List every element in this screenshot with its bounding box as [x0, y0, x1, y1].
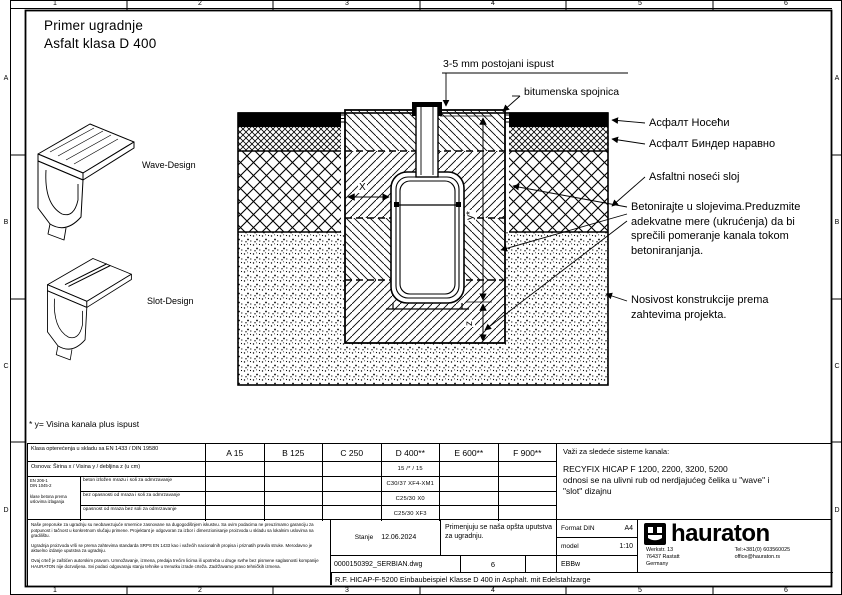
- format-cell: Format DIN A4: [557, 520, 638, 538]
- empty-cell: [499, 462, 558, 477]
- empty-cell: [265, 506, 324, 521]
- disclaimer-paragraph-2: Ugradnja proizvoda vrši se prema zahtevi…: [31, 543, 327, 554]
- systems-line1: RECYFIX HICAP F 1200, 2200, 3200, 5200: [563, 464, 827, 475]
- dim-label-z: z: [464, 320, 475, 327]
- empty-cell: [499, 506, 558, 521]
- disclaimer-paragraph-1: Naše preporuke za ugradnju su neobavezuj…: [31, 522, 327, 539]
- status-date: 12.06.2024: [381, 534, 416, 541]
- ruler-col-top-6: 6: [780, 0, 792, 8]
- ruler-col-bot-5: 5: [634, 587, 646, 595]
- load-class-label-cell: Klasa opterećenja u skladu sa EN 1433 / …: [28, 444, 206, 462]
- ruler-col-top-1: 1: [49, 0, 61, 8]
- ruler-row-left-a: A: [0, 75, 12, 83]
- empty-cell: [265, 477, 324, 492]
- systems-line3: "slot" dizajnu: [563, 486, 827, 497]
- hauraton-logo-icon: [644, 523, 666, 545]
- ruler-row-right-a: A: [831, 75, 842, 83]
- ruler-row-right-b: B: [831, 219, 842, 227]
- concrete-row2-label: bez opasnosti od mraza i soli za odmrzav…: [81, 492, 206, 506]
- empty-cell: [440, 462, 499, 477]
- slot-design-illustration: [33, 248, 145, 366]
- ruler-col-bot-6: 6: [780, 587, 792, 595]
- class-header-d400: D 400**: [382, 444, 441, 462]
- empty-cell: [323, 477, 382, 492]
- empty-cell: [323, 506, 382, 521]
- systems-line2: odnosi se na ulivni rub od nerdjajućeg č…: [563, 475, 827, 486]
- address-line-1: Werkstr. 13: [646, 547, 680, 554]
- concrete-row3-label: opasnost od mraza bez soli za odmrzavanj…: [81, 506, 206, 521]
- ruler-row-right-c: C: [831, 363, 842, 371]
- disclaimer-block: Naše preporuke za ugradnju su neobavezuj…: [28, 520, 331, 585]
- label-asfaltni-sloj: Asfaltni noseći sloj: [649, 171, 740, 184]
- concrete-row3-d400: C25/30 XF3: [382, 506, 441, 521]
- scale-label: model: [561, 543, 579, 550]
- page-title-line1: Primer ugradnje: [44, 17, 143, 35]
- revision-cell: 6: [461, 556, 526, 573]
- concrete-row1-label: beton izložen mrazu i soli za odmrzavanj…: [81, 477, 206, 492]
- brand-address: Werkstr. 13 76437 Rastatt Germany: [646, 547, 680, 567]
- callout-ispust: 3-5 mm postojani ispust: [443, 58, 554, 70]
- footnote-y: * y= Visina kanala plus ispust: [29, 419, 139, 429]
- format-label: Format DIN: [561, 525, 595, 532]
- ruler-col-bot-4: 4: [487, 587, 499, 595]
- slot-design-label: Slot-Design: [147, 296, 194, 306]
- dim-label-x: X: [358, 182, 367, 193]
- empty-cell: [499, 492, 558, 506]
- ruler-col-bot-1: 1: [49, 587, 61, 595]
- note-nosivost: Nosivost konstrukcije prema zahtevima pr…: [631, 293, 816, 322]
- class-header-f900: F 900**: [499, 444, 558, 462]
- code-cell: EBBw: [557, 556, 638, 573]
- phone-line: Tel:+381(0) 603560025: [735, 547, 791, 554]
- format-value: A4: [624, 525, 633, 532]
- dimension-label-cell: Osnova: Širina x / Visina y / debljina z…: [28, 462, 206, 477]
- ruler-row-left-c: C: [0, 363, 12, 371]
- page-title-line2: Asfalt klasa D 400: [44, 35, 156, 53]
- ruler-col-bot-3: 3: [341, 587, 353, 595]
- brand-wordmark: hauraton: [671, 523, 770, 545]
- empty-cell: [440, 477, 499, 492]
- spec-table: Klasa opterećenja u skladu sa EN 1433 / …: [27, 443, 832, 520]
- address-line-2: 76437 Rastatt: [646, 554, 680, 561]
- scale-value: 1:10: [619, 543, 633, 550]
- scale-cell: model 1:10: [557, 538, 638, 556]
- general-note-cell: Primenjuju se naša opšta uputstva za ugr…: [441, 520, 557, 556]
- empty-cell: [206, 462, 265, 477]
- ruler-row-left-d: D: [0, 507, 12, 515]
- ruler-col-bot-2: 2: [194, 587, 206, 595]
- ruler-col-top-4: 4: [487, 0, 499, 8]
- callout-spojnica: bitumenska spojnica: [524, 86, 619, 98]
- systems-block: Važi za sledeće sisteme kanala: RECYFIX …: [557, 444, 833, 521]
- empty-cell: [206, 492, 265, 506]
- concrete-row2-d400: C25/30 X0: [382, 492, 441, 506]
- dimension-d400-cell: 15 /* / 15: [382, 462, 441, 477]
- doc-title-cell: R.F. HICAP-F-5200 Einbaubeispiel Klasse …: [331, 573, 833, 585]
- dim-label-y: y*: [465, 210, 476, 221]
- file-name-cell: 0000150392_SERBIAN.dwg: [331, 556, 461, 573]
- road-layers-left: [238, 113, 341, 232]
- ruler-row-left-b: B: [0, 219, 12, 227]
- wave-design-illustration: [28, 112, 143, 247]
- empty-cell: [440, 506, 499, 521]
- status-cell: Stanje 12.06.2024: [331, 520, 441, 556]
- systems-title: Važi za sledeće sisteme kanala:: [563, 447, 827, 456]
- empty-cell: [265, 462, 324, 477]
- drawing-sheet: 1 2 3 4 5 6 1 2 3 4 5 6 A B C D A B C D …: [0, 0, 842, 595]
- empty-cell: [206, 506, 265, 521]
- road-layers-right: [509, 113, 608, 232]
- note-betonirajte: Betonirajte u slojevima.Preduzmite adekv…: [631, 200, 831, 258]
- class-header-c250: C 250: [323, 444, 382, 462]
- disclaimer-paragraph-3: Ovaj crtež je zaštićen autorskim pravom.…: [31, 558, 327, 569]
- class-header-a15: A 15: [206, 444, 265, 462]
- concrete-row1-d400: C30/37 XF4-XM1: [382, 477, 441, 492]
- empty-cell: [323, 462, 382, 477]
- label-asfalt-noseci: Асфалт Носећи: [649, 117, 729, 130]
- ruler-col-top-2: 2: [194, 0, 206, 8]
- address-line-3: Germany: [646, 561, 680, 568]
- ruler-col-top-5: 5: [634, 0, 646, 8]
- brand-block: hauraton Werkstr. 13 76437 Rastatt Germa…: [638, 520, 833, 573]
- label-asfalt-binder: Асфалт Биндер наравно: [649, 138, 775, 151]
- class-header-b125: B 125: [265, 444, 324, 462]
- class-header-e600: E 600**: [440, 444, 499, 462]
- empty-cell: [499, 477, 558, 492]
- email-line: office@hauraton.rs: [735, 554, 791, 561]
- status-label: Stanje: [355, 534, 373, 541]
- empty-cell: [526, 556, 557, 573]
- empty-cell: [323, 492, 382, 506]
- ruler-col-top-3: 3: [341, 0, 353, 8]
- wave-design-label: Wave-Design: [142, 160, 196, 170]
- brand-contact: Tel:+381(0) 603560025 office@hauraton.rs: [735, 547, 791, 567]
- title-block: Naše preporuke za ugradnju su neobavezuj…: [27, 520, 832, 587]
- empty-cell: [440, 492, 499, 506]
- empty-cell: [206, 477, 265, 492]
- concrete-standard-cell: EN 206-1 DIN 1045-2 klase betona prema u…: [28, 477, 81, 521]
- empty-cell: [265, 492, 324, 506]
